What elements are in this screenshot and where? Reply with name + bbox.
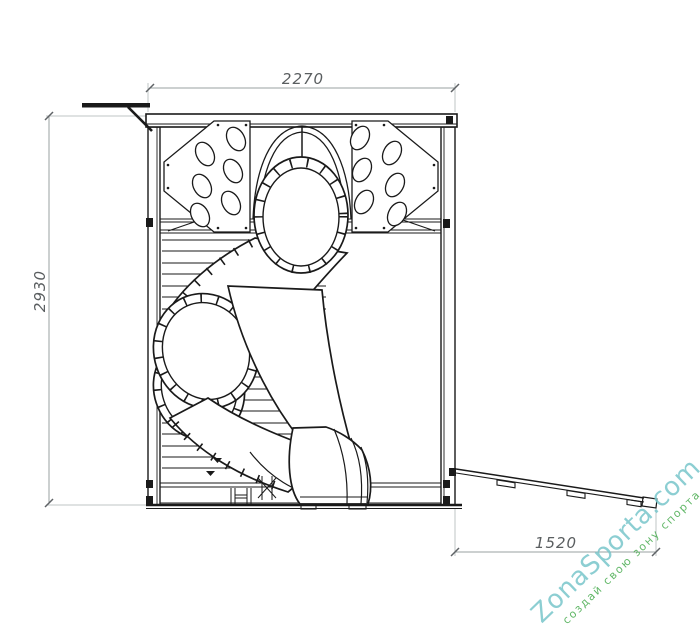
climbing-panel-right: [347, 121, 438, 232]
dimension-ramp-label: 1520: [526, 534, 586, 552]
dimension-height-label: 2930: [31, 261, 49, 321]
dimension-width-label: 2270: [273, 70, 333, 88]
right-post: [441, 127, 455, 505]
left-post: [148, 127, 160, 505]
access-ramp: [449, 468, 657, 508]
ground-line: [146, 505, 462, 509]
drawing-canvas: 2270 2930 1520 ZonaSporta.com создай сво…: [0, 0, 700, 642]
top-beam: [146, 114, 457, 127]
climbing-panel-left: [164, 121, 250, 232]
technical-drawing: [0, 0, 700, 642]
tube-entrance-ring: [254, 157, 348, 273]
top-left-bracket: [82, 103, 152, 131]
slide-exit-bell: [289, 427, 370, 509]
